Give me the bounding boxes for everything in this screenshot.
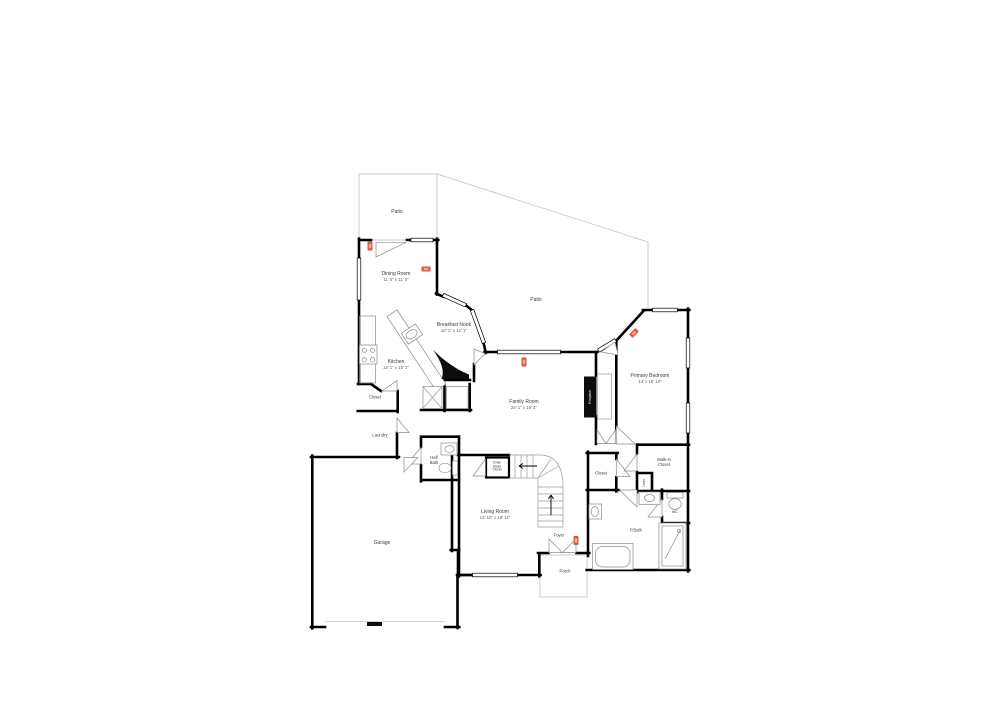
bathtub-icon xyxy=(593,544,634,570)
room-label-linen: Linen xyxy=(642,479,646,487)
room-label-garage: Garage xyxy=(374,540,391,546)
patio-outline xyxy=(359,174,648,308)
staircase xyxy=(509,455,563,527)
porch-outline xyxy=(540,555,587,597)
floorplan-page: Patio Patio Dining Room 11' 0" x 11' 4" … xyxy=(0,0,1000,704)
room-label-porch: Porch xyxy=(560,568,571,573)
entry-door-marker-icon xyxy=(368,242,373,251)
wc-toilet-icon xyxy=(667,493,683,510)
room-label-laundry: Laundry xyxy=(372,432,387,437)
room-label-dining-room: Dining Room 11' 0" x 11' 4" xyxy=(382,271,411,283)
entry-door-marker-icon xyxy=(574,536,579,545)
entry-door-marker-icon xyxy=(522,358,527,367)
room-label-walk-in-closet: Walk-In Closet xyxy=(652,457,676,468)
bath-vanity-sink-icon xyxy=(639,492,660,505)
entry-door-marker-icon xyxy=(629,328,639,338)
room-label-breakfast-nook: Breakfast Nook 10' 1" x 12' 1" xyxy=(437,322,471,334)
entry-door-marker-icon xyxy=(422,267,431,272)
room-label-kitchen: Kitchen 13' 1" x 15' 2" xyxy=(383,359,409,371)
half-bath-sink-icon xyxy=(441,443,457,455)
room-label-wc: WC xyxy=(672,510,678,514)
half-bath-toilet-icon xyxy=(439,461,458,475)
shower-icon xyxy=(659,523,686,569)
walls xyxy=(311,239,689,629)
room-label-kitchen-closet: Closet xyxy=(369,394,381,399)
garage-door xyxy=(325,622,445,627)
room-label-patio-upper: Patio xyxy=(391,209,402,215)
room-label-under-stairs-closet: Under Stairs Closet xyxy=(490,462,505,473)
stove-icon xyxy=(360,345,378,364)
room-label-living-room: Living Room 13' 10" x 18' 11" xyxy=(480,509,510,521)
room-label-half-bath: Half Bath xyxy=(427,455,441,466)
room-label-family-room: Family Room 24' 1" x 16' 2" xyxy=(509,399,538,411)
room-label-foyer: Foyer xyxy=(554,532,565,537)
doors xyxy=(376,242,662,552)
room-label-patio-main: Patio xyxy=(530,297,541,303)
bath-left-sink-icon xyxy=(589,504,602,519)
room-label-primary-bedroom: Primary Bedroom 14' x 19' 10" xyxy=(631,373,670,385)
fireplace-label: Fireplace xyxy=(588,390,592,404)
room-label-hall-closet: Closet xyxy=(595,470,607,475)
room-label-primary-bath: P.Bath xyxy=(630,527,642,532)
floorplan-drawing xyxy=(0,0,1000,704)
